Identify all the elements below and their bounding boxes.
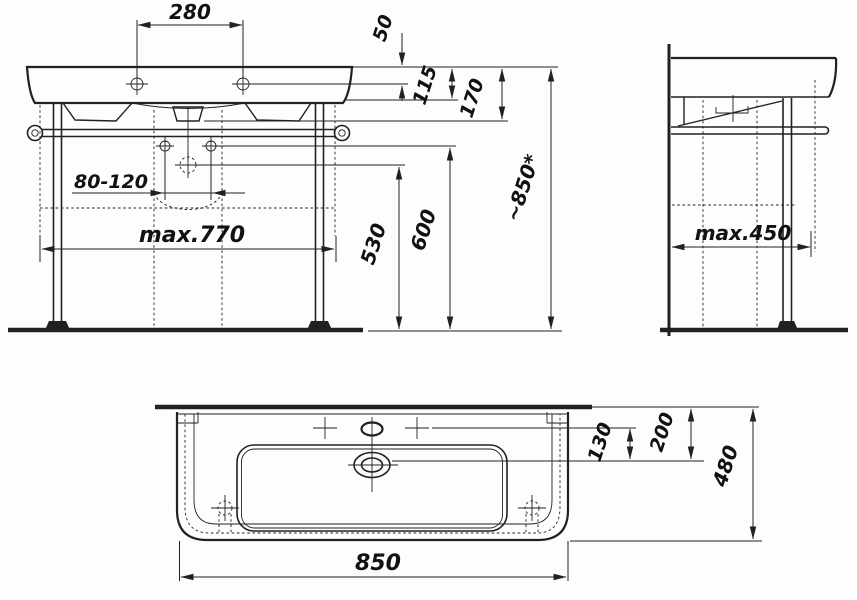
side-view: max.450 (660, 44, 848, 336)
hidden-lines (40, 105, 335, 330)
basin-profile (671, 58, 836, 126)
leg-foot (777, 321, 798, 330)
dim-hole-spacing: 280 (169, 0, 211, 24)
dim-850-height: ~850* (500, 151, 544, 225)
dim-850-width: 850 (355, 551, 401, 576)
basin-underside-left-bracket (63, 103, 132, 121)
drain-icon (348, 417, 398, 492)
dim-max450: max.450 (695, 221, 792, 245)
dim-115: 115 (409, 63, 442, 108)
rail-end-ring-right (335, 126, 350, 141)
basin-underside-right-bracket (245, 103, 311, 121)
towel-rail-side (671, 127, 829, 134)
fixing-bolt-left-icon (211, 495, 239, 532)
support-leg-side (777, 98, 798, 330)
towel-rail (28, 126, 350, 141)
basin-outline (27, 67, 352, 103)
technical-drawing: 280 50 115 170 ~850* 600 530 80-120 max.… (0, 0, 857, 600)
rim-inner-line (194, 414, 552, 524)
leader-lines-plan (180, 407, 763, 581)
plan-view: 130 200 480 850 (155, 407, 762, 581)
optional-tap-hole-right-icon (405, 417, 429, 439)
dim-bolt-spacing: 80-120 (74, 171, 148, 193)
dim-max770: max.770 (139, 223, 245, 248)
dim-600: 600 (405, 206, 441, 253)
basin-plan-outline (177, 412, 568, 540)
front-view: 280 50 115 170 ~850* 600 530 80-120 max.… (8, 0, 562, 331)
dim-50: 50 (369, 12, 398, 44)
washbasin-drawing-svg: 280 50 115 170 ~850* 600 530 80-120 max.… (0, 0, 857, 600)
optional-tap-hole-left-icon (313, 417, 337, 439)
dim-530: 530 (355, 220, 391, 267)
dim-130: 130 (584, 420, 617, 465)
fixing-bolt-right-icon (518, 495, 546, 532)
dim-480: 480 (707, 442, 743, 490)
dim-200: 200 (646, 410, 679, 455)
drain-outlet-icon (175, 152, 201, 178)
dim-170: 170 (456, 76, 489, 121)
hidden-lines-side (672, 80, 815, 328)
